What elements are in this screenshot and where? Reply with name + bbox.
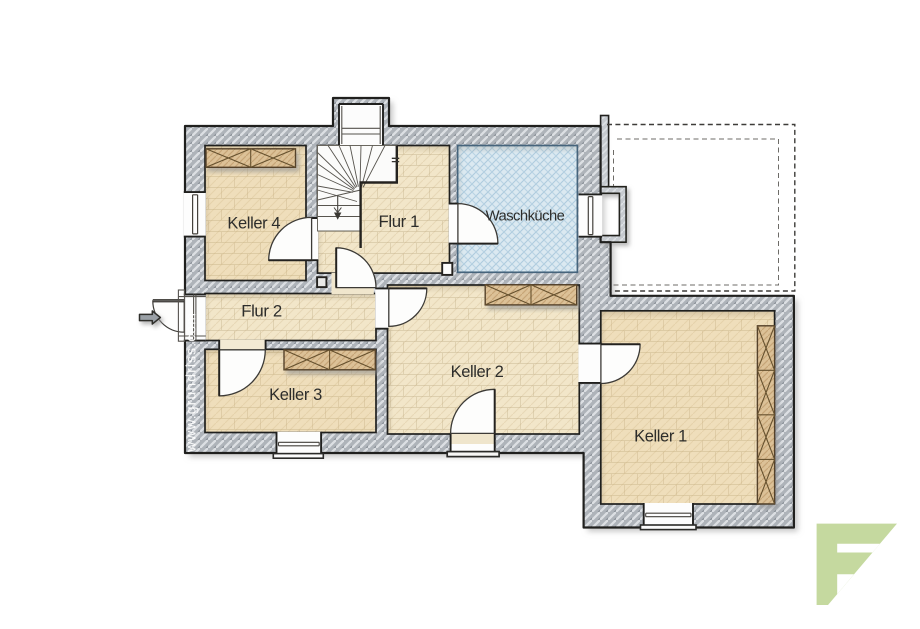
svg-text:www.grundriss.com: www.grundriss.com	[183, 312, 199, 453]
svg-text:Flur 2: Flur 2	[241, 302, 282, 321]
svg-text:Keller 4: Keller 4	[227, 214, 280, 232]
svg-text:Waschküche: Waschküche	[486, 209, 565, 225]
svg-text:Keller 1: Keller 1	[634, 428, 687, 446]
svg-text:Flur 1: Flur 1	[379, 212, 420, 231]
svg-text:Keller 2: Keller 2	[451, 363, 504, 381]
svg-text:Keller 3: Keller 3	[269, 386, 322, 404]
